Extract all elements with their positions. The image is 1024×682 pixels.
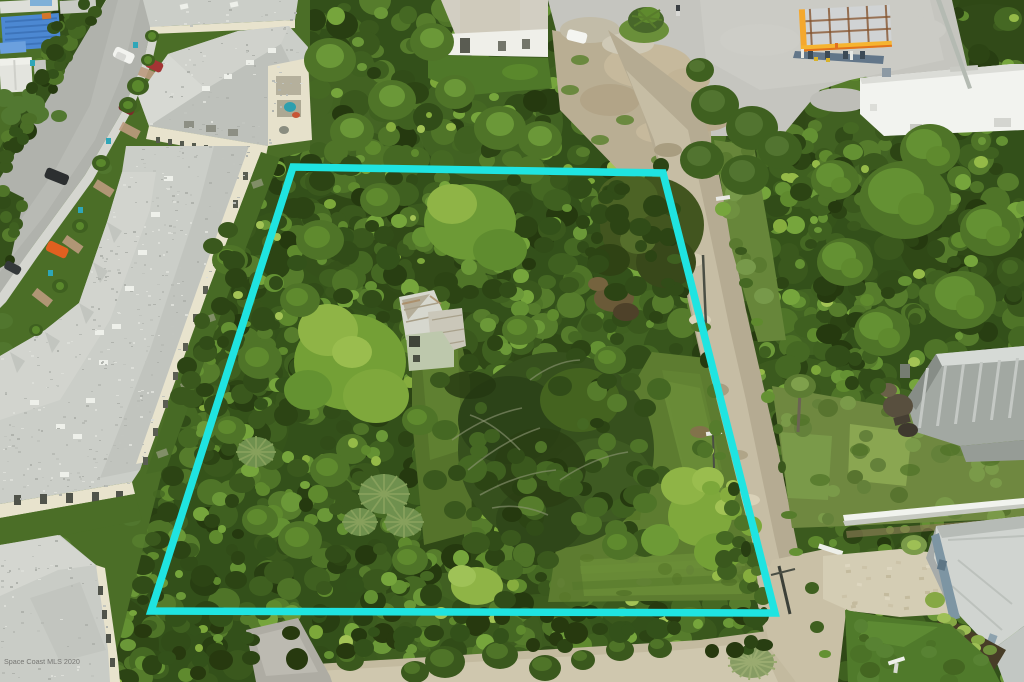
svg-text:Space Coast MLS 2020: Space Coast MLS 2020 [4,657,80,666]
